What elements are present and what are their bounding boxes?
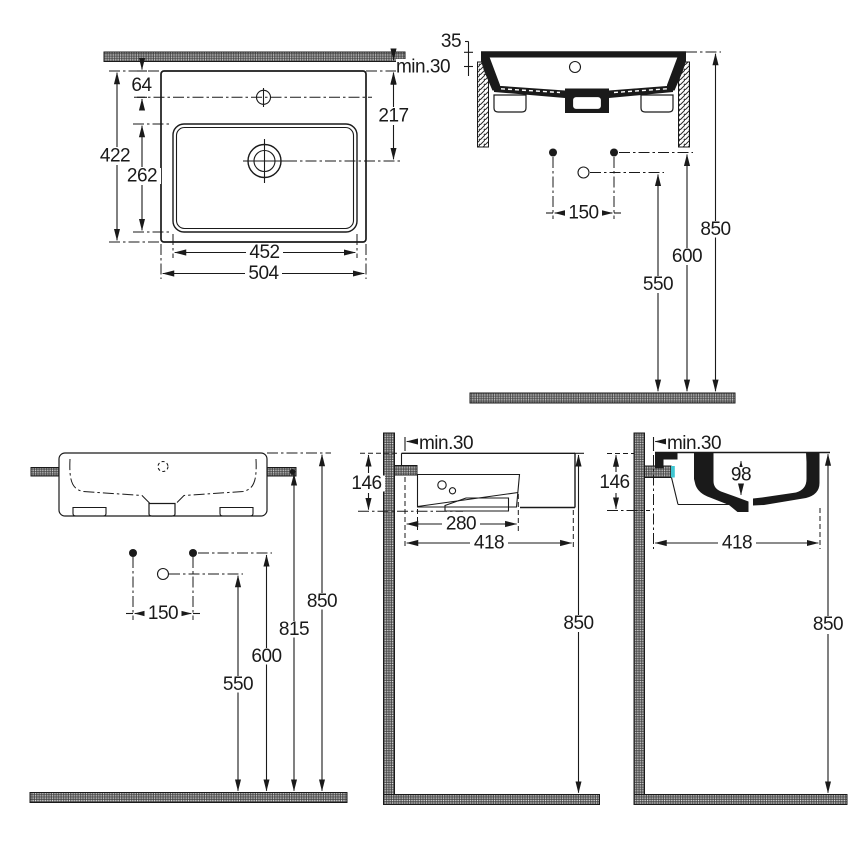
dim-label-422: 422 <box>100 146 130 167</box>
dim-label-150-elev: 150 <box>148 603 178 624</box>
dim-label-35: 35 <box>441 31 461 52</box>
dim-plan-drain-offset: 217 <box>375 73 412 159</box>
basin-section-front <box>481 52 686 113</box>
dim-plan-wall-gap: min.30 <box>394 52 453 80</box>
wall-hatch-side-section <box>634 433 645 795</box>
dim-body-height-ss: 146 <box>596 455 633 509</box>
dim-label-850-fs: 850 <box>700 219 730 240</box>
dim-label-600-elev: 600 <box>251 646 281 667</box>
dim-label-550-fs: 550 <box>643 274 673 295</box>
dim-label-min30-ss: min.30 <box>667 433 721 454</box>
dim-plan-offset-top: 64 <box>128 61 155 107</box>
mount-pocket-right <box>641 95 673 112</box>
dim-plan-bowl-width: 452 <box>175 242 356 263</box>
plan-view: 422 64 262 min.30 <box>97 52 452 284</box>
dim-label-280-side: 280 <box>446 514 476 535</box>
faucet-hole-front <box>570 62 581 73</box>
wall-hatch-top <box>104 52 405 62</box>
dim-drain-height-elev: 550 <box>220 576 257 791</box>
fixing-hole-left <box>549 149 557 157</box>
dim-label-850-elev: 850 <box>307 591 337 612</box>
floor-hatch-side <box>384 795 600 805</box>
drain-elev <box>149 504 175 517</box>
dim-bowl-length-side: 280 <box>407 514 517 535</box>
dim-plan-bowl-depth: 262 <box>124 126 161 231</box>
drain-fitting-side <box>445 498 509 511</box>
dim-total-depth-ss: 418 <box>655 533 818 554</box>
dim-hole-spacing-elev: 150 <box>126 603 200 624</box>
dim-label-min30-plan: min.30 <box>396 57 450 78</box>
mount-pocket-left <box>494 95 526 112</box>
dim-label-550-elev: 550 <box>223 674 253 695</box>
dim-label-418-side: 418 <box>474 533 504 554</box>
dim-wall-gap-side-section: min.30 <box>654 433 723 454</box>
front-section-view: 35 150 550 600 <box>438 31 735 403</box>
dim-inner-depth-ss: 98 <box>728 461 755 495</box>
floor-hatch-front-section <box>470 393 735 403</box>
dim-wall-gap-side: min.30 <box>405 433 474 454</box>
bowl-front-wall-section <box>753 452 820 506</box>
dim-label-64: 64 <box>131 75 152 96</box>
fixing-hole-left-elev <box>129 549 137 557</box>
washbasin-technical-drawing: 422 64 262 min.30 <box>0 0 868 868</box>
bracket-left-elev <box>31 468 59 477</box>
dim-label-850-ss: 850 <box>813 614 843 635</box>
drawing-canvas: 422 64 262 min.30 <box>0 0 868 868</box>
dim-label-150-fs: 150 <box>568 203 598 224</box>
dim-label-217: 217 <box>378 106 408 127</box>
dim-total-depth-side: 418 <box>407 533 572 554</box>
drain-outlet-point <box>578 167 589 178</box>
dim-bracket-height-elev: 815 <box>276 474 313 791</box>
fixing-hole-right <box>610 149 618 157</box>
side-view: min.30 146 280 418 850 <box>348 433 600 805</box>
bracket-seal-accent <box>671 466 675 478</box>
bracket-side <box>395 466 418 476</box>
dim-plan-depth: 422 <box>97 73 134 241</box>
dim-label-262: 262 <box>127 166 157 187</box>
dim-label-504: 504 <box>248 263 279 284</box>
floor-hatch-elev <box>30 793 347 803</box>
dim-label-418-ss: 418 <box>722 533 752 554</box>
drain-outlet-point-elev <box>158 569 169 580</box>
dim-drain-height-fs: 550 <box>640 175 677 392</box>
dim-body-height-side: 146 <box>348 455 385 510</box>
dim-label-98-ss: 98 <box>731 465 751 486</box>
wall-hatch-side <box>384 433 395 795</box>
basin-profile-side <box>402 453 576 511</box>
dim-holes-height-fs: 600 <box>669 155 706 392</box>
dim-rim-height-side: 850 <box>560 453 597 793</box>
fixing-hole-right-elev <box>189 549 197 557</box>
dim-rim-height-fs: 850 <box>697 54 734 392</box>
dim-hole-spacing-front-section: 150 <box>546 203 621 224</box>
floor-hatch-side-section <box>634 795 847 805</box>
dim-holes-height-elev: 600 <box>248 555 285 791</box>
dim-label-452: 452 <box>249 242 279 263</box>
dim-label-600-fs: 600 <box>672 246 702 267</box>
dim-plan-width: 504 <box>163 263 365 284</box>
dim-rim-height-ss: 850 <box>810 454 847 793</box>
front-elevation-view: 150 550 600 815 850 <box>30 453 347 803</box>
dim-label-min30-side: min.30 <box>419 433 473 454</box>
side-section-view: min.30 146 98 418 850 <box>596 433 847 805</box>
dim-label-146-ss: 146 <box>599 472 629 493</box>
dim-label-850-side: 850 <box>563 613 593 634</box>
dim-label-146-side: 146 <box>351 473 381 494</box>
drain-plan <box>243 139 286 183</box>
bracket-fix-point <box>290 469 296 475</box>
dim-label-815-elev: 815 <box>279 619 309 640</box>
